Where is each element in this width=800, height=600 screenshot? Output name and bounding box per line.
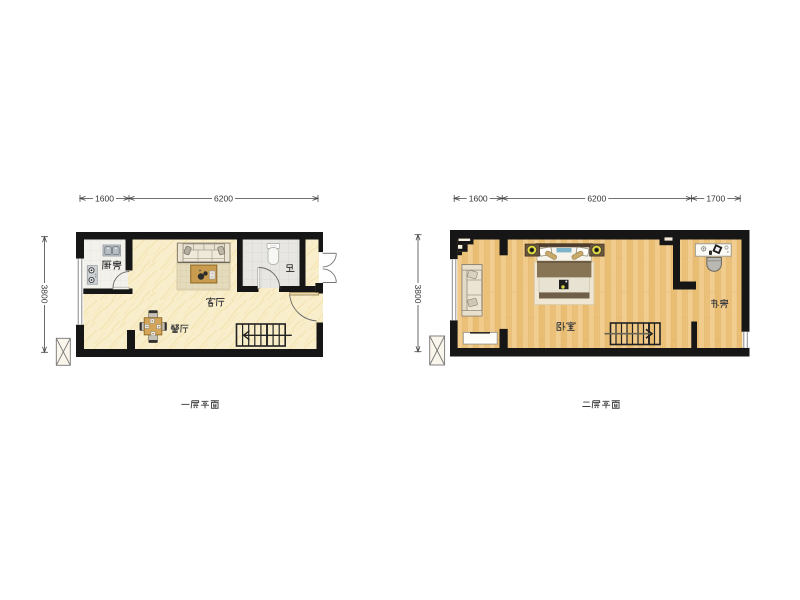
svg-text:6200: 6200 <box>587 194 606 204</box>
svg-text:3800: 3800 <box>413 285 423 304</box>
svg-text:1700: 1700 <box>706 194 725 204</box>
svg-text:3800: 3800 <box>40 285 50 304</box>
svg-text:1600: 1600 <box>469 194 488 204</box>
svg-text:1600: 1600 <box>95 194 114 204</box>
svg-text:6200: 6200 <box>214 194 233 204</box>
